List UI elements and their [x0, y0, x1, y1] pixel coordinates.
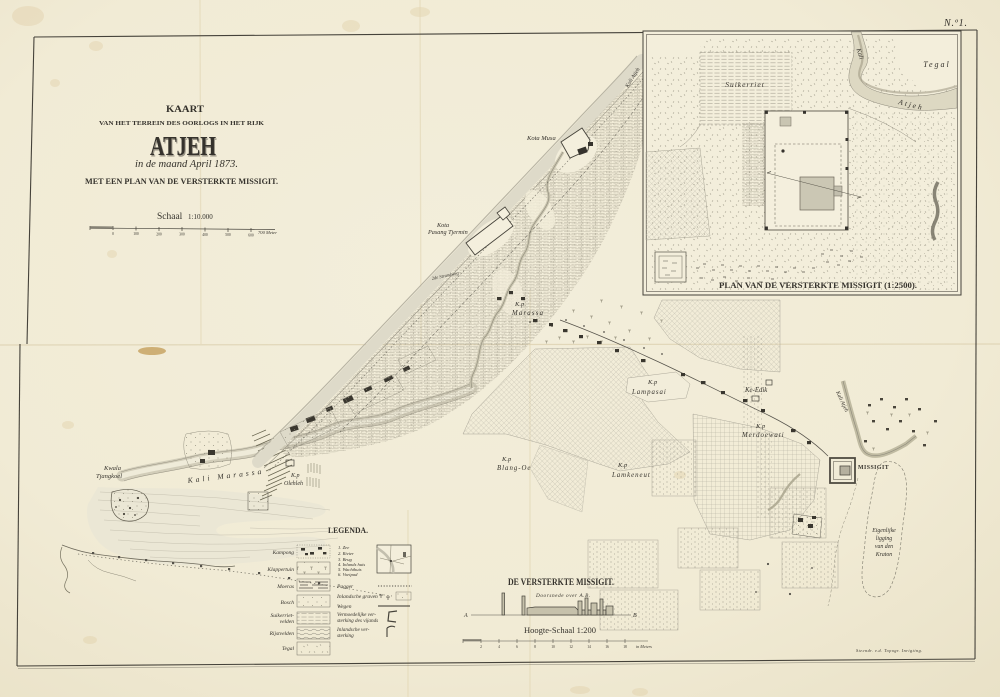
svg-text:sterking: sterking [337, 633, 354, 639]
svg-text:A: A [463, 613, 468, 619]
svg-text:Kampong: Kampong [272, 550, 295, 556]
svg-text:MET EEN PLAN VAN DE VERSTERKTE: MET EEN PLAN VAN DE VERSTERKTE MISSIGIT. [85, 177, 278, 186]
svg-text:in de maand April 1873.: in de maand April 1873. [135, 159, 238, 170]
svg-text:K.p: K.p [501, 456, 512, 463]
svg-text:500: 500 [225, 233, 231, 237]
svg-text:K.p: K.p [514, 301, 525, 308]
svg-text:Tegal: Tegal [923, 60, 951, 69]
svg-text:1. Zee: 1. Zee [338, 545, 349, 550]
svg-text:K.p: K.p [617, 462, 628, 469]
svg-text:Wegen: Wegen [337, 604, 352, 610]
svg-text:300: 300 [179, 233, 185, 237]
svg-text:MISSIGIT: MISSIGIT [858, 465, 889, 471]
svg-text:PLAN VAN DE VERSTERKTE MISSIGI: PLAN VAN DE VERSTERKTE MISSIGIT (1:2500)… [719, 280, 917, 290]
svg-text:12: 12 [569, 645, 573, 649]
svg-text:K.p: K.p [290, 473, 300, 479]
svg-text:Kota: Kota [436, 222, 449, 229]
svg-text:400: 400 [202, 233, 208, 237]
svg-text:18: 18 [623, 645, 627, 649]
svg-text:100: 100 [133, 232, 139, 236]
svg-text:10: 10 [551, 645, 555, 649]
svg-text:Olehleh: Olehleh [284, 481, 303, 487]
svg-text:VAN HET TERREIN DES OORLOGS IN: VAN HET TERREIN DES OORLOGS IN HET RIJK [99, 120, 264, 127]
svg-text:K.p: K.p [647, 379, 658, 386]
svg-text:Rijstvelden: Rijstvelden [269, 631, 295, 637]
svg-text:B: B [633, 613, 637, 619]
svg-text:Inlandsche graven: Inlandsche graven [336, 594, 378, 600]
svg-text:Klappertuin: Klappertuin [266, 567, 294, 573]
svg-text:200: 200 [156, 233, 162, 237]
svg-text:2. Rivier: 2. Rivier [338, 551, 354, 556]
svg-text:Suikerriet: Suikerriet [725, 80, 765, 89]
svg-text:Kraton: Kraton [875, 552, 893, 558]
svg-text:Lamkeneut: Lamkeneut [611, 472, 651, 479]
svg-text:4: 4 [498, 645, 500, 649]
svg-text:K.p: K.p [755, 423, 766, 430]
svg-text:Steendr. v.d. Topogr. Inrigtin: Steendr. v.d. Topogr. Inrigting. [856, 648, 923, 653]
svg-text:Eigenlijke: Eigenlijke [871, 528, 896, 534]
svg-text:Doorsnede over A.B.: Doorsnede over A.B. [535, 593, 591, 599]
svg-text:Tegal: Tegal [282, 646, 294, 652]
svg-text:6: 6 [516, 645, 518, 649]
svg-text:600: 600 [248, 234, 254, 238]
svg-text:KAART: KAART [166, 105, 205, 115]
svg-text:Hoogte-Schaal 1:200: Hoogte-Schaal 1:200 [524, 625, 596, 635]
svg-text:2: 2 [480, 645, 482, 649]
svg-text:1:10.000: 1:10.000 [188, 213, 213, 221]
svg-text:Lampasai: Lampasai [631, 389, 667, 396]
svg-text:LEGENDA.: LEGENDA. [328, 525, 368, 535]
svg-text:Blang-Oe: Blang-Oe [497, 465, 531, 472]
svg-text:14: 14 [587, 645, 591, 649]
svg-text:Pasang Tjermin: Pasang Tjermin [427, 229, 468, 236]
svg-text:ligging: ligging [876, 536, 893, 542]
svg-text:in Meters: in Meters [636, 644, 652, 649]
svg-text:Pagger: Pagger [336, 584, 354, 590]
svg-text:Ke-Edik: Ke-Edik [744, 387, 768, 394]
svg-text:Kwala: Kwala [103, 465, 121, 472]
svg-text:DE VERSTERKTE MISSIGIT.: DE VERSTERKTE MISSIGIT. [508, 577, 614, 587]
svg-text:sterking des vijands: sterking des vijands [337, 618, 378, 624]
svg-text:8: 8 [534, 645, 536, 649]
svg-text:16: 16 [605, 645, 609, 649]
svg-text:N.º1.: N.º1. [943, 18, 968, 29]
svg-text:700 Meter: 700 Meter [258, 230, 277, 235]
svg-text:Schaal: Schaal [157, 212, 183, 222]
svg-text:Bosch: Bosch [281, 600, 295, 606]
svg-text:Moeras: Moeras [276, 584, 294, 590]
svg-text:Marassa: Marassa [511, 310, 544, 317]
svg-text:Kota Musa: Kota Musa [526, 135, 556, 142]
svg-text:0: 0 [112, 232, 114, 236]
svg-text:ATJEH: ATJEH [150, 131, 216, 161]
svg-text:van den: van den [875, 544, 893, 550]
svg-text:velden: velden [280, 619, 295, 625]
svg-text:Tjangkoel: Tjangkoel [96, 473, 122, 480]
svg-text:6. Voetpad: 6. Voetpad [338, 572, 358, 577]
